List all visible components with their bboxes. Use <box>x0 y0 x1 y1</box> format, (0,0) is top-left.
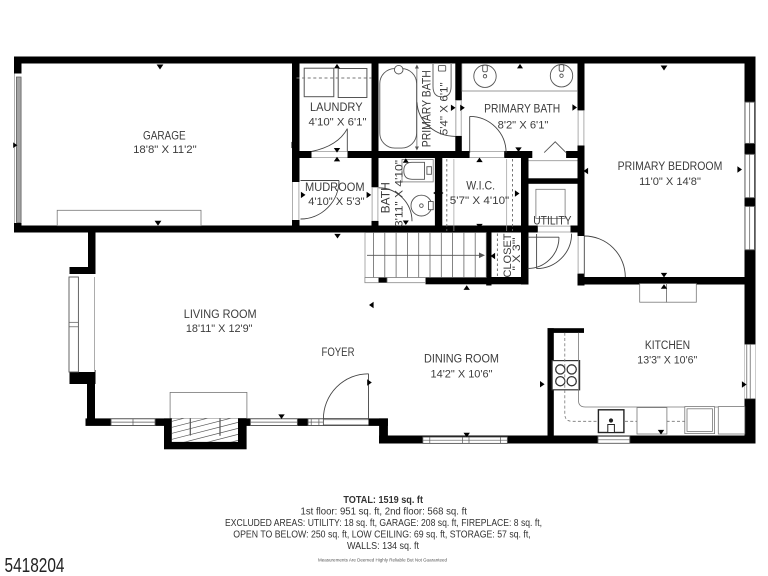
svg-text:18'11" X 12'9": 18'11" X 12'9" <box>186 323 253 335</box>
svg-text:OPEN TO BELOW: 250 sq. ft, LOW: OPEN TO BELOW: 250 sq. ft, LOW CEILING: … <box>233 530 530 541</box>
svg-text:4'10" X 5'3": 4'10" X 5'3" <box>308 196 364 208</box>
svg-text:5418204: 5418204 <box>5 555 65 576</box>
svg-text:PRIMARY BATH: PRIMARY BATH <box>484 101 560 115</box>
svg-text:Measurements Are Deemed Highly: Measurements Are Deemed Highly Reliable … <box>318 558 448 563</box>
svg-text:LIVING ROOM: LIVING ROOM <box>184 307 257 321</box>
svg-text:3'11" X 4'10": 3'11" X 4'10" <box>394 160 406 227</box>
svg-text:KITCHEN: KITCHEN <box>645 338 690 352</box>
svg-text:8'2" X 6'1": 8'2" X 6'1" <box>498 119 549 131</box>
svg-text:MUDROOM: MUDROOM <box>305 180 365 194</box>
svg-text:5'4" X 6'1": 5'4" X 6'1" <box>439 82 451 135</box>
svg-text:TOTAL: 1519 sq. ft: TOTAL: 1519 sq. ft <box>343 495 423 506</box>
svg-text:14'2" X 10'6": 14'2" X 10'6" <box>431 369 493 381</box>
svg-text:BATH: BATH <box>378 182 392 213</box>
svg-text:W.I.C.: W.I.C. <box>466 178 495 192</box>
svg-text:PRIMARY BATH: PRIMARY BATH <box>419 70 433 147</box>
svg-text:GARAGE: GARAGE <box>143 129 186 143</box>
svg-text:UTILITY: UTILITY <box>533 214 571 228</box>
svg-text:DINING ROOM: DINING ROOM <box>424 352 499 366</box>
svg-text:EXCLUDED AREAS: UTILITY: 18 sq: EXCLUDED AREAS: UTILITY: 18 sq. ft, GARA… <box>225 518 542 529</box>
svg-text:" X 3'": " X 3'" <box>511 237 523 270</box>
svg-text:WALLS: 134 sq. ft: WALLS: 134 sq. ft <box>347 541 419 552</box>
svg-text:13'3" X 10'6": 13'3" X 10'6" <box>637 355 697 367</box>
svg-text:11'0" X 14'8": 11'0" X 14'8" <box>639 176 701 188</box>
svg-text:4'10" X 6'1": 4'10" X 6'1" <box>309 117 367 129</box>
svg-text:5'7" X 4'10": 5'7" X 4'10" <box>450 195 509 207</box>
svg-text:18'8" X 11'2": 18'8" X 11'2" <box>133 144 197 156</box>
svg-text:FOYER: FOYER <box>322 345 355 359</box>
svg-text:PRIMARY BEDROOM: PRIMARY BEDROOM <box>618 159 723 173</box>
svg-text:LAUNDRY: LAUNDRY <box>310 100 363 114</box>
svg-text:1st floor: 951 sq. ft, 2nd flo: 1st floor: 951 sq. ft, 2nd floor: 568 sq… <box>301 507 468 518</box>
